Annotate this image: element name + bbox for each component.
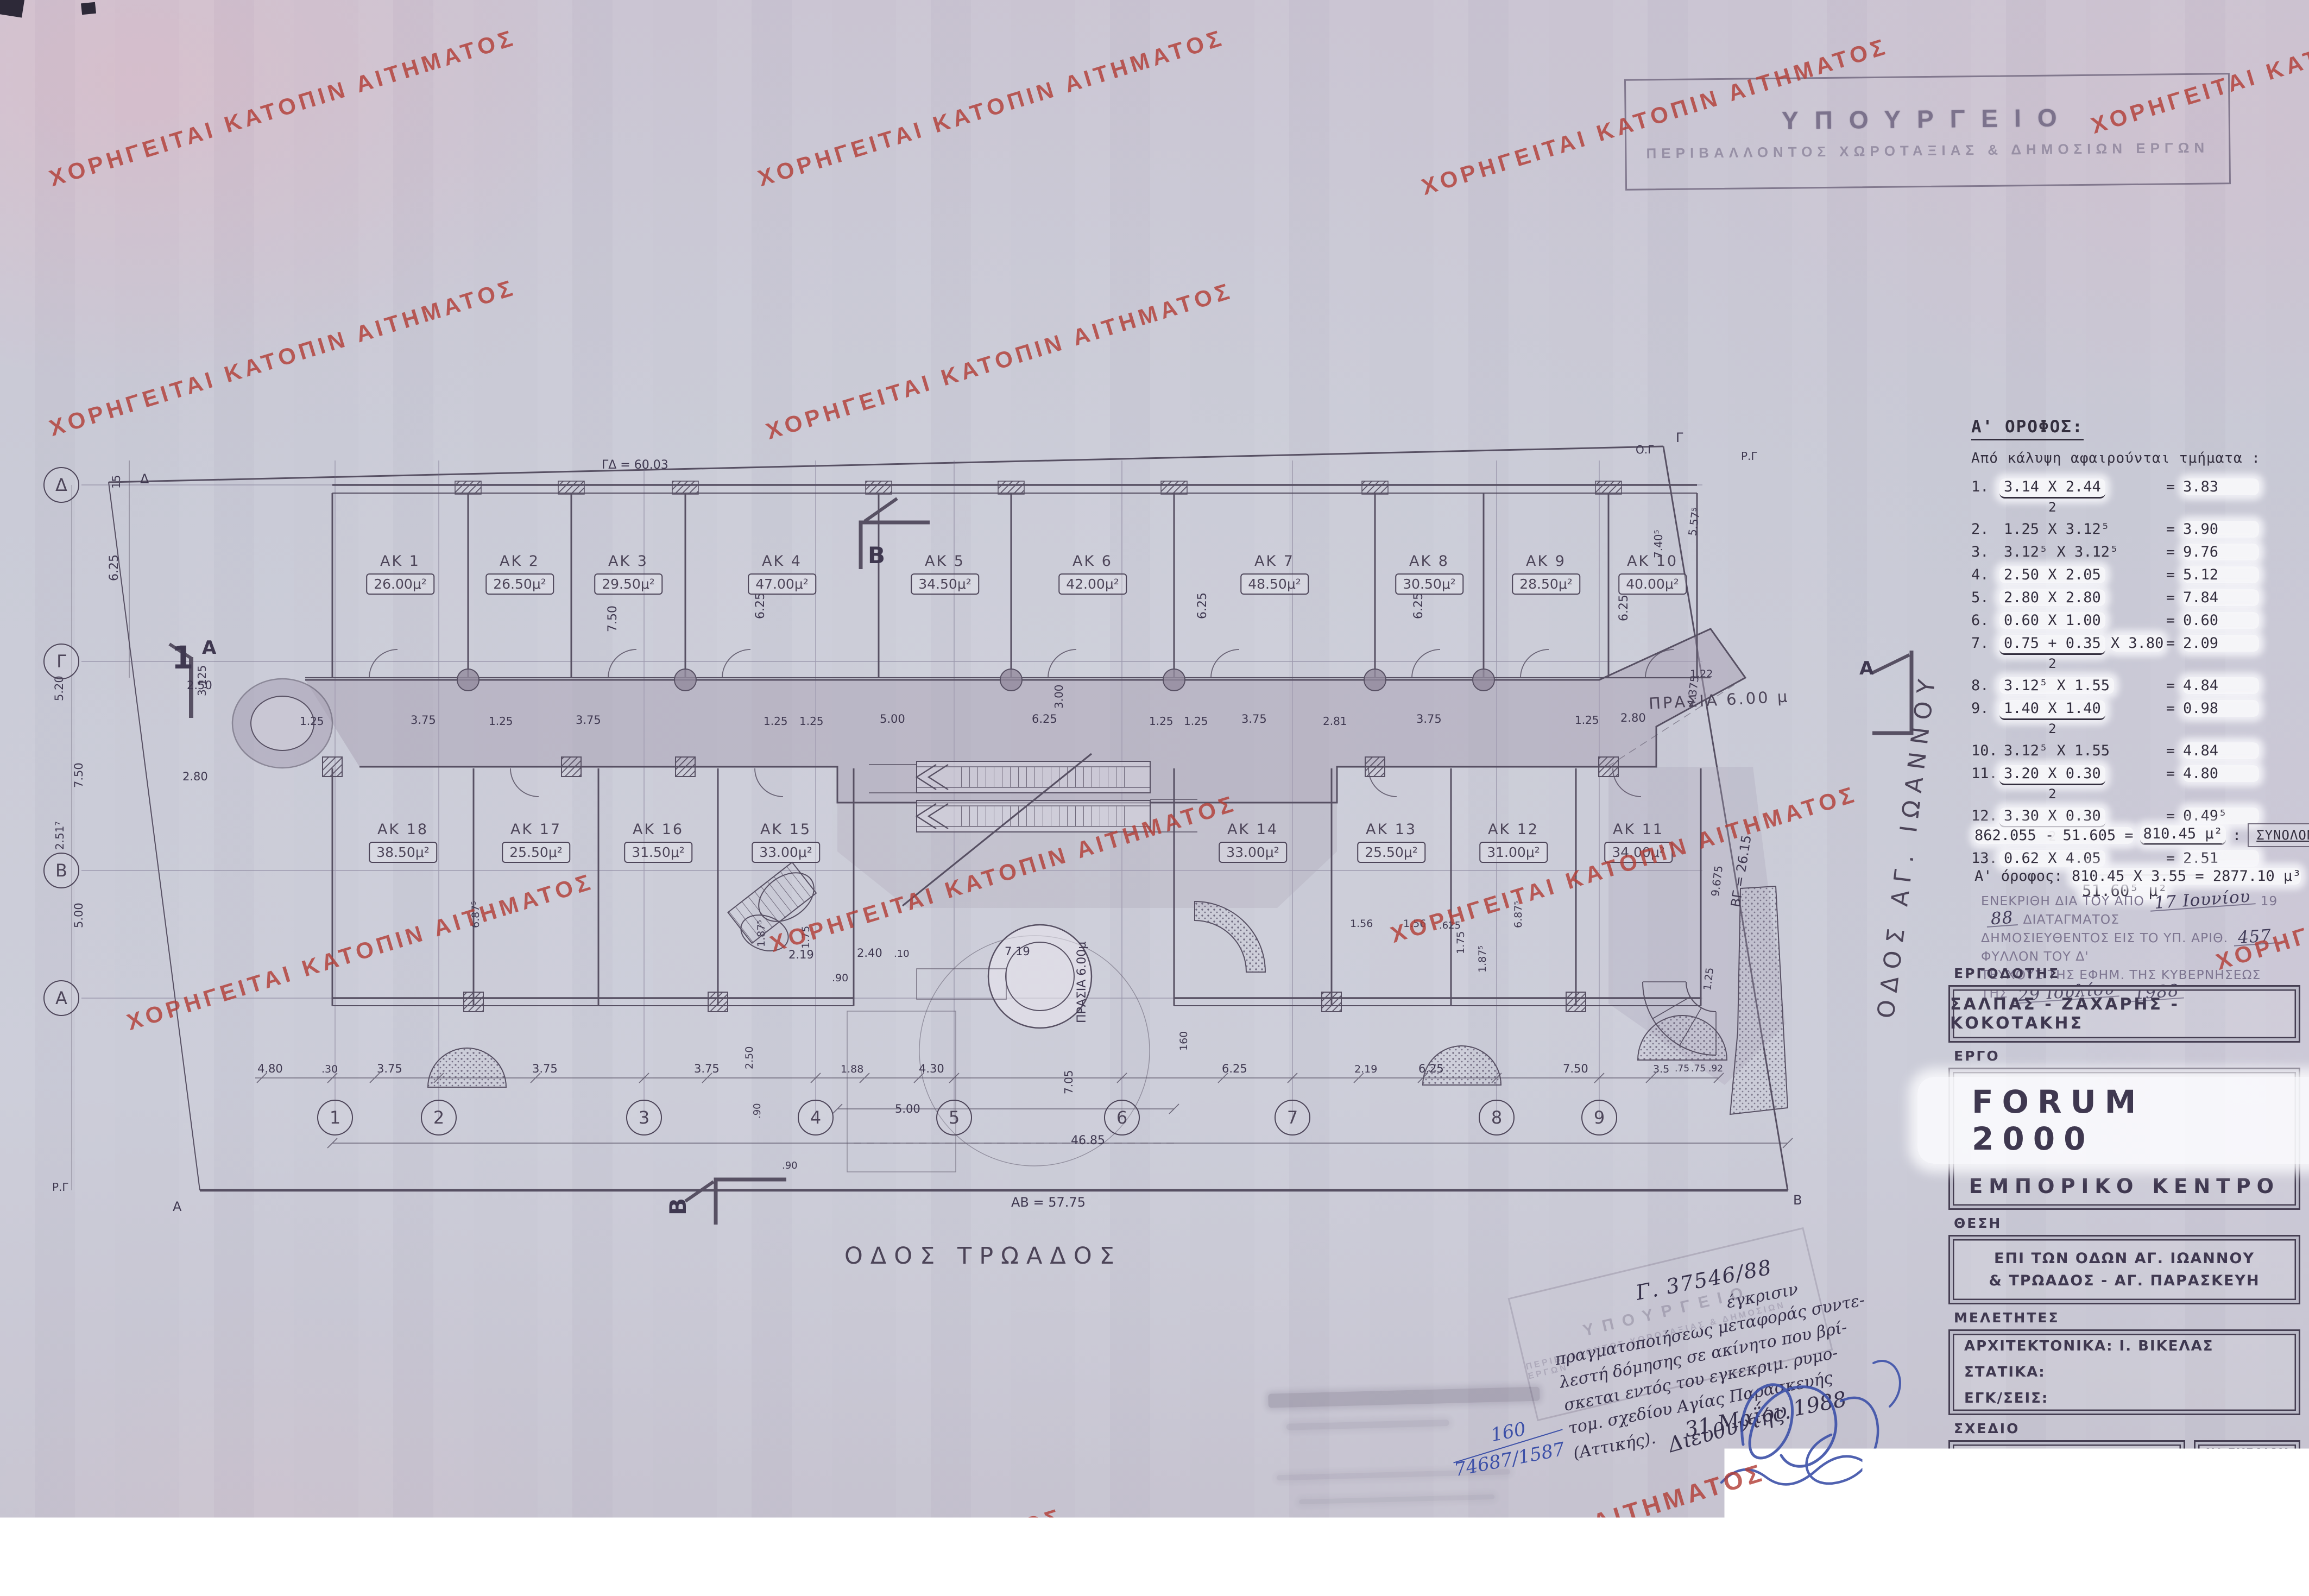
watermark-text: ΧΟΡΗΓΕΙΤΑΙ ΚΑΤΟΠΙΝ ΑΙΤΗΜΑΤΟΣ (763, 277, 1236, 445)
watermark-text: ΧΟΡΗΓΕΙΤΑΙ ΚΑΤΟΠΙΝ ΑΙΤΗΜΑΤΟΣ (593, 1503, 1066, 1596)
scanned-blueprint-sheet: ΓΔ = 60.03ΔΓΟ.ΓΡ.ΓΡ.ΓΑΒ156.255.207.502.5… (0, 0, 2309, 1596)
watermark-text: ΧΟΡΗΓΕΙΤΑΙ ΚΑΤΟΠΙΝ ΑΙΤΗΜΑΤΟΣ (46, 24, 519, 192)
watermark-text: ΧΟΡΗΓΕΙΤΑΙ ΚΑΤΟΠΙΝ ΑΙΤΗΜΑΤΟΣ (755, 24, 1228, 192)
watermark-text: ΧΟΡΗΓΕΙΤΑΙ ΚΑΤΟΠΙΝ ΑΙΤΗΜΑΤΟΣ (1387, 781, 1860, 948)
watermark-text: ΧΟΡΗΓΕΙΤΑΙ ΚΑΤΟΠΙΝ ΑΙΤΗΜΑΤΟΣ (46, 274, 519, 441)
watermark-text: ΧΟΡΗΓΕΙΤΑΙ ΚΑΤΟΠΙΝ ΑΙΤΗΜΑΤΟΣ (124, 868, 597, 1036)
watermark-text: ΧΟΡΗΓΕΙΤΑΙ ΚΑΤΟΠΙΝ ΑΙΤΗΜΑΤΟΣ (1418, 33, 1891, 200)
watermark-text: ΧΟΡΗΓΕΙΤΑΙ ΚΑΤΟΠΙΝ ΑΙΤΗΜΑΤΟΣ (767, 790, 1240, 957)
watermark-text: ΧΟΡΗΓΕΙΤΑΙ ΚΑΤΟΠΙΝ ΑΙΤΗΜΑΤΟΣ (2213, 808, 2309, 975)
watermark-text: ΧΟΡΗΓΕΙΤΑΙ ΚΑΤΟΠΙΝ ΑΙΤΗΜΑΤΟΣ (2088, 0, 2309, 139)
watermark-text: ΧΟΡΗΓΕΙΤΑΙ ΚΑΤΟΠΙΝ ΑΙΤΗΜΑΤΟΣ (1260, 1458, 1768, 1596)
watermark-layer: ΧΟΡΗΓΕΙΤΑΙ ΚΑΤΟΠΙΝ ΑΙΤΗΜΑΤΟΣΧΟΡΗΓΕΙΤΑΙ Κ… (0, 0, 2309, 1596)
scan-artifact (81, 2, 96, 15)
